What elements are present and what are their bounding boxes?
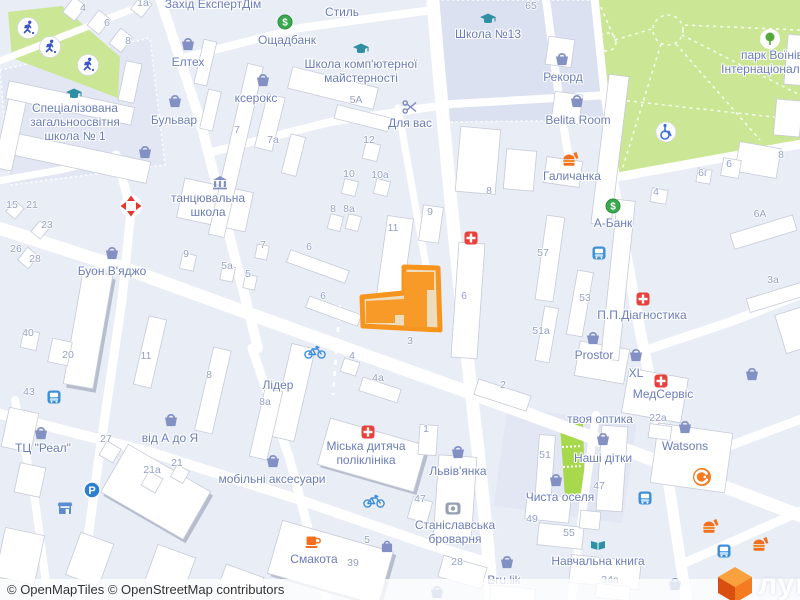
wheelchair-icon[interactable] <box>655 121 677 143</box>
house-number: 49 <box>526 513 538 525</box>
basket-icon[interactable] <box>180 37 196 52</box>
lun-watermark-text: лун <box>758 568 800 600</box>
cap-icon[interactable] <box>352 43 370 56</box>
poi-label-stanislavska-brovarnia: Станіславськаброварня <box>415 518 495 546</box>
poi-label-mobilni-aksesuary: мобільні аксесуари <box>219 472 326 486</box>
house-number: 4 <box>349 350 355 362</box>
house-number: 21а <box>143 464 161 476</box>
house-number: 26 <box>10 243 22 255</box>
poi-label-vid-a-do-ya: від А до Я <box>142 431 198 445</box>
bus-icon[interactable] <box>638 491 653 506</box>
house-number: 3а <box>767 274 779 286</box>
svg-text:P: P <box>88 485 95 497</box>
poi-label-rekord: Рекорд <box>543 70 583 84</box>
museum-icon[interactable] <box>212 176 228 190</box>
poi-label-belita-room: Belita Room <box>545 113 610 127</box>
house-number: 12 <box>363 134 375 146</box>
bus-icon[interactable] <box>717 544 732 559</box>
house-number: 53 <box>579 292 591 304</box>
poi-label-elteh: Елтех <box>172 55 205 69</box>
house-number: 11 <box>388 222 399 234</box>
house-number: 5 <box>245 268 251 280</box>
house-number: 1 <box>423 423 429 435</box>
poi-label-watsons: Watsons <box>662 439 708 453</box>
house-number: 28 <box>451 556 463 568</box>
store-icon[interactable] <box>58 502 73 515</box>
house-number: 5А <box>350 94 363 106</box>
basket-icon[interactable] <box>569 94 585 109</box>
poi-label-tantsiuvalna-shkola: танцювальнашкола <box>171 191 245 219</box>
house-number: 39 <box>347 557 359 569</box>
house-number: 65 <box>525 0 537 12</box>
poi-label-lider: Лідер <box>263 378 294 392</box>
house-number: 15 <box>6 199 18 211</box>
house-number: 51а <box>532 325 550 337</box>
food-icon[interactable] <box>702 518 719 534</box>
poi-label-prostor: Prostor <box>575 348 614 362</box>
medical-icon[interactable] <box>361 425 376 440</box>
house-number: 1а <box>137 0 149 9</box>
food-icon[interactable] <box>752 536 769 552</box>
house-number: 21 <box>171 457 183 469</box>
house-number: 6 <box>461 290 467 302</box>
house-number: 22а <box>649 412 667 424</box>
house-number: 4 <box>653 186 659 198</box>
basket-icon[interactable] <box>255 73 271 88</box>
poi-label-halychanka: Галичанка <box>543 169 601 183</box>
basket-icon[interactable] <box>499 555 515 570</box>
poi-label-miska-dytiacha-poliklinika: Міська дитячаполіклініка <box>326 439 405 467</box>
basket-icon[interactable] <box>33 426 49 441</box>
attribution-text[interactable]: © OpenMapTiles © OpenStreetMap contribut… <box>7 582 284 597</box>
house-number: 4а <box>372 372 384 384</box>
poi-label-tts-real: ТЦ "Реал" <box>15 441 71 455</box>
house-number: 47 <box>593 480 605 492</box>
parking-icon[interactable]: P <box>83 481 101 499</box>
house-number: 6 <box>306 241 312 253</box>
poi-label-a-bank: А-Банк <box>594 216 632 230</box>
poi-label-medservis: МедСервіс <box>633 387 694 401</box>
basket-icon[interactable] <box>548 473 564 488</box>
house-number: 10 <box>343 168 355 180</box>
lun-cube-logo <box>716 564 754 600</box>
poi-label-bulvar: Бульвар <box>151 113 197 127</box>
svg-text:$: $ <box>282 18 288 29</box>
house-number: 27 <box>100 433 112 445</box>
house-number: 5а <box>221 260 233 272</box>
house-number: 47 <box>414 493 426 505</box>
bicycle-icon[interactable] <box>363 494 385 509</box>
house-number: 2 <box>500 379 506 391</box>
medical-icon[interactable] <box>464 231 479 246</box>
house-number: 8 <box>330 203 336 215</box>
dollar-icon[interactable]: $ <box>277 14 293 30</box>
house-number: 6А <box>754 208 767 220</box>
basket-icon[interactable] <box>677 420 693 435</box>
house-number: 5 <box>364 534 370 546</box>
poi-label-oschadbank: Ощадбанк <box>258 33 316 47</box>
map-labels-layer: $$PЗахід ЕкспертДімСтильОщадбанкШкола №1… <box>0 0 800 600</box>
poi-label-dlia-vas: Для вас <box>388 116 432 130</box>
poi-label-chysta-oselia: Чиста оселя <box>526 490 595 504</box>
poi-label-lvivianka: Львів'янка <box>429 464 486 478</box>
basket-icon[interactable] <box>450 445 466 460</box>
house-number: 8 <box>486 185 492 197</box>
comfy-icon[interactable] <box>692 467 712 487</box>
basket-icon[interactable] <box>163 413 179 428</box>
basket-icon[interactable] <box>628 348 644 363</box>
house-number: 6г <box>698 167 708 179</box>
cap-icon[interactable] <box>479 13 497 26</box>
poi-label-buon-viadzho: Буон В'яджо <box>78 264 147 278</box>
dollar-icon[interactable]: $ <box>605 198 621 214</box>
poi-label-shkola-13: Школа №13 <box>455 27 521 41</box>
svg-text:$: $ <box>610 202 616 213</box>
poi-label-tvoia-optyka: твоя оптика <box>567 412 633 426</box>
house-number: 10а <box>371 169 389 181</box>
bus-icon[interactable] <box>592 246 607 261</box>
house-number: 28 <box>29 253 41 265</box>
basket-icon[interactable] <box>744 367 760 382</box>
house-number: 23 <box>41 219 53 231</box>
poi-label-kseroks: ксерокс <box>235 91 278 105</box>
house-number: 7а <box>267 134 279 146</box>
basket-icon[interactable] <box>265 454 281 469</box>
tree-icon[interactable] <box>759 28 781 50</box>
house-number: 9 <box>183 248 189 260</box>
house-number: 51 <box>539 449 551 461</box>
house-number: 6 <box>320 290 326 302</box>
house-number: 21 <box>26 199 38 211</box>
house-number: 55 <box>563 527 575 539</box>
house-number: 9 <box>427 206 433 218</box>
poi-label-zahid-ekspertdim: Захід ЕкспертДім <box>165 0 261 11</box>
attribution-bar[interactable]: © OpenMapTiles © OpenStreetMap contribut… <box>0 579 800 600</box>
poi-label-shkola-kompiuternoi: Школа комп'ютерноїмайстерності <box>305 57 418 85</box>
house-number: 7 <box>234 124 240 136</box>
bag-icon[interactable] <box>380 539 395 554</box>
basket-icon[interactable] <box>585 331 601 346</box>
food-icon[interactable] <box>562 151 579 167</box>
runner-icon[interactable] <box>77 54 100 77</box>
coffee-icon[interactable] <box>305 535 322 550</box>
house-number: 20 <box>62 349 74 361</box>
bicycle-icon[interactable] <box>304 345 326 360</box>
lun-watermark: лун <box>716 564 800 600</box>
house-number: 8а <box>343 203 355 215</box>
house-number: 6 <box>726 158 732 170</box>
house-number: 7 <box>260 239 266 251</box>
house-number: 4 <box>80 2 86 14</box>
basket-icon[interactable] <box>595 432 611 447</box>
house-number: 8 <box>778 149 784 161</box>
house-number: 8 <box>125 35 131 47</box>
house-number: 40 <box>22 327 34 339</box>
basket-icon[interactable] <box>167 94 183 109</box>
house-number: 8а <box>259 396 271 408</box>
poi-label-pp-diahnostyka: П.П.Діагностика <box>597 308 686 322</box>
medical-icon[interactable] <box>636 292 651 307</box>
basket-icon[interactable] <box>137 145 153 160</box>
basket-icon[interactable] <box>104 246 120 261</box>
redarrows-icon[interactable] <box>119 194 143 218</box>
bus-icon[interactable] <box>47 390 62 405</box>
poi-label-smakota: Смакота <box>290 552 337 566</box>
map-canvas[interactable]: $$PЗахід ЕкспертДімСтильОщадбанкШкола №1… <box>0 0 800 600</box>
runner-icon[interactable] <box>17 17 40 40</box>
basket-icon[interactable] <box>554 52 570 67</box>
poi-label-shkola-1: Спеціалізованазагальноосвітняшкола № 1 <box>30 101 120 143</box>
poi-label-park-voiniv: парк ВоїнівІнтернаціоналістів <box>721 48 800 76</box>
poi-label-xl: XL <box>629 366 644 380</box>
book-icon[interactable] <box>590 539 606 551</box>
house-number: 11 <box>141 350 152 362</box>
camera-icon[interactable] <box>445 501 462 516</box>
cap-icon[interactable] <box>65 88 83 101</box>
house-number: 8 <box>206 369 212 381</box>
poi-label-styl: Стиль <box>325 5 359 19</box>
poi-label-nashi-ditky: Наші дітки <box>574 451 632 465</box>
house-number: 57 <box>537 247 549 259</box>
house-number: 3 <box>407 335 413 347</box>
scissors-icon[interactable] <box>402 99 418 115</box>
poi-label-navchalna-knyha: Навчальна книга <box>551 554 644 568</box>
house-number: 6 <box>104 17 110 29</box>
runner-icon[interactable] <box>39 36 62 59</box>
house-number: 43 <box>23 386 35 398</box>
